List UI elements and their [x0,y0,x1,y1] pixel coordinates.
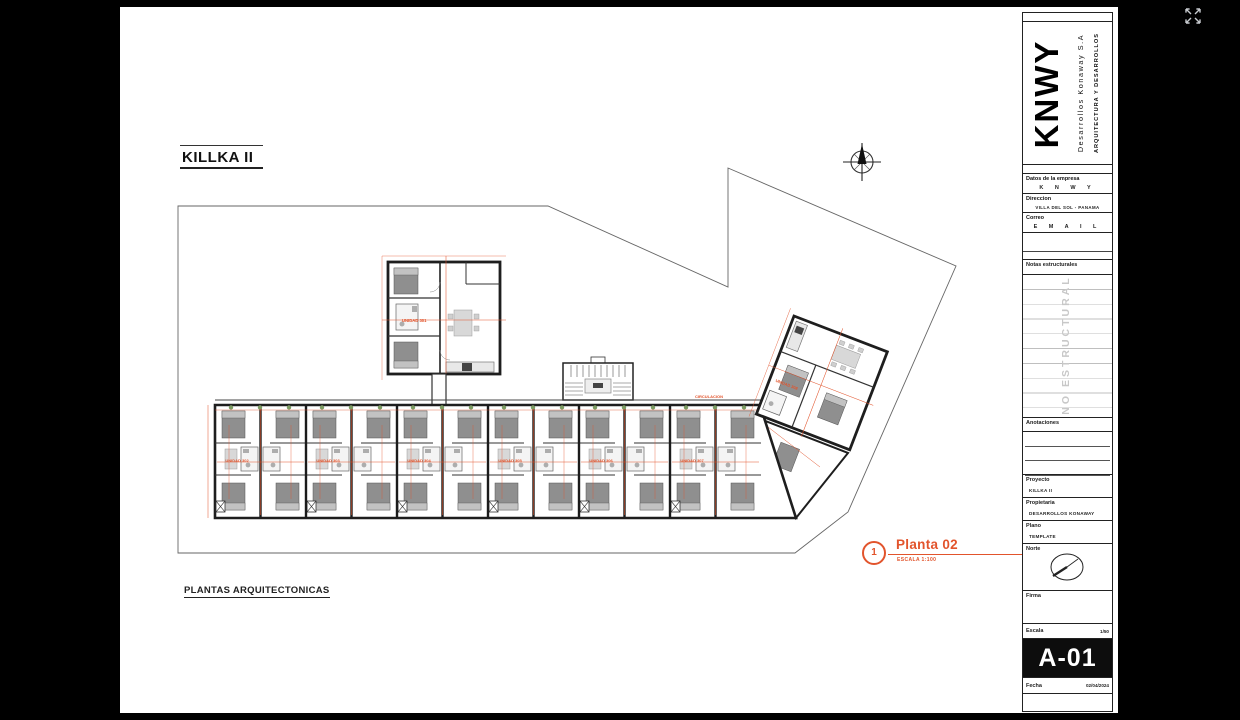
unit-label: UNIDAD 303 [316,458,340,463]
north-label: Norte [1023,544,1112,552]
main-building: UNIDAD 302 UNIDAD 303 UNIDAD 304 UNIDAD … [208,394,796,518]
unit-label: UNIDAD 307 [680,458,704,463]
logo-panel: KNWY Desarrollos Konaway S.A ARQUITECTUR… [1023,22,1112,165]
scale-cell: Escala 1/50 [1023,624,1112,639]
owner-value: DESARROLLOS KONAWAY [1023,510,1112,521]
signature-label: Firma [1023,591,1112,599]
page-title: KILLKA II [180,145,263,169]
plan-label: Plano [1023,521,1112,533]
titleblock-gap-band [1023,165,1112,174]
unit-detached: UNIDAD 301 [382,256,506,380]
callout-title: Planta 02 [896,537,958,552]
circulation-label: CIRCULACION [695,394,723,399]
annotations-label: Anotaciones [1023,418,1112,432]
scale-value: 1/50 [1100,629,1109,634]
stair-core [563,357,633,400]
north-compass-icon [843,143,881,181]
unit-label: UNIDAD 305 [498,458,522,463]
floor-plan-canvas: UNIDAD 301 [120,7,1118,713]
company-logo: KNWY [1027,24,1067,164]
owner-label: Propietaria [1023,498,1112,510]
field-company-value: K N W Y [1026,182,1109,193]
project-label: Proyecto [1023,475,1112,487]
field-address-value: VILLA DEL SOL - PANAMA [1026,202,1109,212]
drawing-sheet: UNIDAD 301 [120,7,1118,713]
sheet-footer-title: PLANTAS ARQUITECTONICAS [184,585,330,598]
screen: { "viewer": { "icons": { "fullscreen": "… [0,0,1240,720]
company-tagline: ARQUITECTURA Y DESARROLLOS [1093,23,1101,163]
blank-field-row [1023,233,1112,260]
date-value: 02/04/2024 [1086,683,1109,688]
structural-notes-area: NO ESTRUCTURAL [1023,275,1112,418]
unit-label: UNIDAD 302 [225,458,249,463]
company-name: Desarrollos Konaway S.A [1076,23,1086,163]
title-block: KNWY Desarrollos Konaway S.A ARQUITECTUR… [1022,12,1113,712]
north-indicator-icon [1023,552,1110,586]
plan-callout: 1 Planta 02 ESCALA 1:100 [862,539,1032,573]
callout-rule [888,554,1022,556]
plan-value: TEMPLATE [1023,533,1112,544]
scale-label: Escala [1026,628,1043,634]
date-label: Fecha [1026,683,1042,689]
field-email: Correo E M A I L [1023,213,1112,233]
notes-watermark: NO ESTRUCTURAL [1058,270,1074,420]
field-email-value: E M A I L [1026,221,1109,232]
project-value: KILLKA II [1023,487,1112,498]
annotations-lines [1023,432,1112,475]
unit-label: UNIDAD 306 [589,458,613,463]
sheet-number: A-01 [1023,639,1112,678]
signature-cell: Firma [1023,591,1112,624]
callout-number-badge: 1 [862,541,886,565]
field-company: Datos de la empresa K N W Y [1023,174,1112,194]
north-cell: Norte [1023,544,1112,591]
field-address: Direccion VILLA DEL SOL - PANAMA [1023,194,1112,213]
titleblock-top-band [1023,13,1112,22]
fullscreen-icon[interactable] [1182,6,1204,26]
date-cell: Fecha 02/04/2024 [1023,678,1112,694]
callout-scale: ESCALA 1:100 [897,557,936,563]
unit-label: UNIDAD 301 [402,318,427,323]
unit-label: UNIDAD 304 [407,458,431,463]
